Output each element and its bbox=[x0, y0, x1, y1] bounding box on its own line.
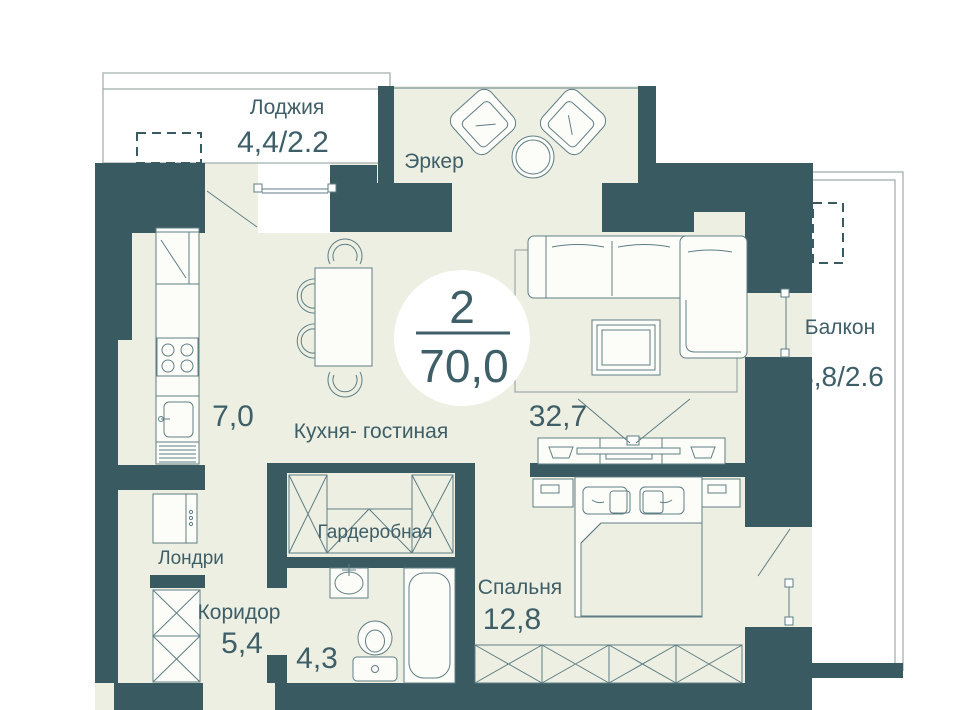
kitchen-living-label: Кухня- гостиная bbox=[294, 420, 448, 443]
round-table bbox=[512, 136, 554, 178]
tray bbox=[549, 447, 573, 458]
window-jamb bbox=[781, 289, 789, 297]
badge-rooms-count: 2 bbox=[449, 281, 475, 333]
bathroom-area: 4,3 bbox=[296, 642, 338, 675]
bedroom-label: Спальня bbox=[478, 576, 562, 599]
loggia-zone: Лоджия 4,4/2.2 bbox=[103, 73, 390, 163]
balcony-ac-unit-dashed bbox=[813, 203, 843, 263]
bedroom-closet bbox=[475, 645, 742, 683]
window-jamb bbox=[781, 349, 789, 357]
loggia-area: 4,4/2.2 bbox=[237, 126, 329, 159]
double-bed bbox=[575, 477, 702, 617]
bay-label: Эркер bbox=[404, 150, 464, 173]
window-jamb bbox=[254, 184, 262, 192]
badge-total-area: 70,0 bbox=[419, 340, 509, 392]
floor-plan: Лоджия 4,4/2.2 Балкон 8,8/2.6 bbox=[0, 0, 960, 710]
laundry-label: Лондри bbox=[158, 548, 224, 569]
balcony-label: Балкон bbox=[805, 316, 875, 339]
loggia-window-recess bbox=[258, 163, 332, 233]
corridor-wardrobe bbox=[153, 590, 200, 682]
table-top bbox=[315, 268, 372, 366]
corridor-label: Коридор bbox=[198, 601, 281, 624]
wardrobe-room-label: Гардеробная bbox=[318, 522, 433, 543]
window-jamb bbox=[785, 617, 793, 625]
tv-screen bbox=[627, 436, 639, 445]
window-jamb bbox=[328, 184, 336, 192]
tray bbox=[691, 447, 715, 458]
corridor-area: 5,4 bbox=[221, 627, 263, 660]
tv bbox=[577, 448, 680, 454]
nightstand-left bbox=[533, 479, 573, 507]
area-badge: 2 70,0 bbox=[394, 270, 530, 406]
balcony-zone: Балкон 8,8/2.6 bbox=[798, 172, 903, 671]
blanket bbox=[581, 523, 702, 616]
nightstand-right bbox=[700, 479, 740, 507]
balcony-outer-line bbox=[813, 172, 903, 671]
washing-machine bbox=[153, 494, 197, 543]
kitchen-area: 7,0 bbox=[212, 400, 254, 433]
loggia-label: Лоджия bbox=[250, 96, 324, 119]
kitchen-counter bbox=[156, 228, 199, 464]
living-area: 32,7 bbox=[529, 400, 587, 433]
bedroom-area: 12,8 bbox=[483, 603, 541, 636]
bathroom-sink bbox=[330, 564, 368, 598]
balcony-inner-line bbox=[813, 180, 895, 671]
window-jamb bbox=[785, 579, 793, 587]
coffee-table bbox=[592, 320, 660, 375]
bathtub bbox=[404, 568, 455, 683]
floor-plan-page: Лоджия 4,4/2.2 Балкон 8,8/2.6 bbox=[0, 0, 960, 710]
